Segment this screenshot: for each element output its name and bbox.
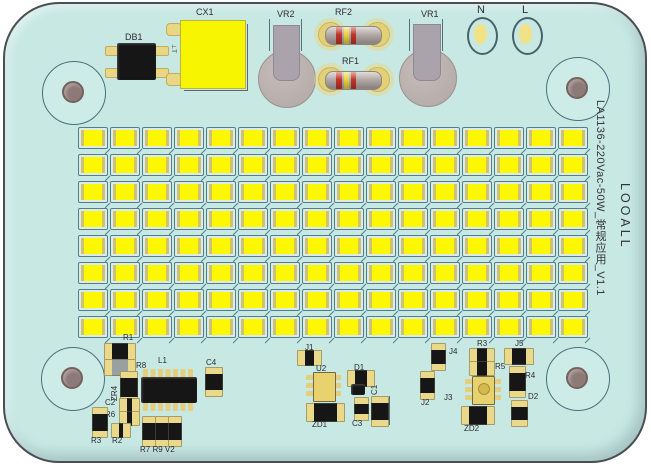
led-chip (494, 208, 524, 230)
led-chip (270, 316, 300, 338)
led-chip (494, 127, 524, 149)
led-chip (110, 235, 140, 257)
l1-ic (141, 377, 197, 403)
r3-label: R3 (91, 436, 101, 445)
c1-outline (389, 396, 390, 425)
terminal-n-label: N (477, 4, 485, 16)
r4-component (509, 366, 526, 398)
led-chip (110, 127, 140, 149)
led-chip (142, 262, 172, 284)
r7-component (142, 416, 156, 447)
cx1-outline (247, 24, 248, 91)
led-chip (366, 262, 396, 284)
led-chip (174, 181, 204, 203)
vr2-label: VR2 (277, 9, 295, 19)
led-chip (238, 127, 268, 149)
rf2-component (325, 26, 382, 45)
r2-label: R2 (112, 436, 122, 445)
terminal-l-pad (512, 17, 543, 55)
v2-component (168, 416, 182, 447)
led-chip (558, 316, 588, 338)
led-chip (398, 289, 428, 311)
hole-pin (566, 367, 588, 389)
hole-pin (566, 77, 588, 99)
db1-component (117, 43, 156, 80)
pcb-photo: DB1 CX1 ⊥T VR2 RF2 RF1 VR1 N L LA1136-22… (0, 0, 651, 467)
led-chip (78, 154, 108, 176)
r1-component (104, 343, 136, 360)
led-chip (430, 289, 460, 311)
led-chip (270, 235, 300, 257)
j2-label: J2 (421, 398, 429, 407)
mounting-hole-top-left (42, 61, 106, 125)
led-chip (142, 289, 172, 311)
r1-label: R1 (123, 333, 133, 342)
led-chip (238, 316, 268, 338)
led-chip (174, 154, 204, 176)
led-chip (206, 127, 236, 149)
j3-label: J3 (444, 393, 452, 402)
led-chip (526, 316, 556, 338)
led-chip (430, 208, 460, 230)
board-model-text: LA1136-220Vac-50W_常规应用_V1.1 (592, 100, 608, 360)
led-chip (270, 127, 300, 149)
led-chip (430, 262, 460, 284)
led-chip (302, 316, 332, 338)
led-chip (494, 316, 524, 338)
led-chip (430, 154, 460, 176)
rf2-label: RF2 (335, 7, 352, 17)
led-chip (334, 127, 364, 149)
led-chip (494, 235, 524, 257)
led-chip (206, 235, 236, 257)
c3-component (354, 397, 369, 421)
led-chip (142, 154, 172, 176)
zd2-component (461, 406, 495, 425)
u2-pins (306, 375, 313, 397)
u3-ic (472, 376, 495, 405)
led-chip (526, 154, 556, 176)
led-chip (238, 262, 268, 284)
terminal-n-solder (474, 24, 487, 44)
led-chip (430, 181, 460, 203)
led-chip (462, 208, 492, 230)
u3-logo-mark (478, 383, 490, 395)
led-chip (494, 154, 524, 176)
led-chip (334, 154, 364, 176)
led-chip (206, 208, 236, 230)
led-chip (558, 262, 588, 284)
j5-label: J5 (515, 339, 523, 348)
led-chip (270, 181, 300, 203)
led-chip (78, 262, 108, 284)
led-chip (302, 154, 332, 176)
led-chip (142, 235, 172, 257)
led-chip (334, 208, 364, 230)
led-chip (558, 208, 588, 230)
led-chip (398, 262, 428, 284)
led-chip (494, 289, 524, 311)
led-chip (558, 181, 588, 203)
led-chip (398, 154, 428, 176)
u3-pins (494, 379, 501, 400)
led-chip (110, 289, 140, 311)
led-chip (270, 262, 300, 284)
zd1-label: ZD1 (312, 420, 327, 429)
led-chip (78, 181, 108, 203)
cx1-polarity-mark: ⊥T (168, 44, 177, 53)
vr1-label: VR1 (421, 9, 439, 19)
led-chip (174, 316, 204, 338)
led-chip (238, 235, 268, 257)
led-chip (494, 262, 524, 284)
led-chip (206, 154, 236, 176)
cx1-label: CX1 (196, 7, 214, 17)
r3b-label: R3 (477, 339, 487, 348)
led-chip (78, 289, 108, 311)
l1-pins (143, 369, 195, 377)
c1-label: C1 (370, 385, 379, 395)
led-chip (430, 127, 460, 149)
led-chip (398, 316, 428, 338)
led-chip (526, 289, 556, 311)
led-chip (462, 262, 492, 284)
j5-component (504, 348, 534, 365)
led-chip (462, 316, 492, 338)
small-chip (351, 384, 365, 395)
led-chip (334, 181, 364, 203)
led-chip (302, 208, 332, 230)
terminal-l-label: L (522, 4, 528, 16)
c4-component (205, 367, 223, 397)
led-chip (110, 262, 140, 284)
u3-pins (465, 379, 472, 400)
led-chip (398, 235, 428, 257)
led-chip (302, 262, 332, 284)
led-chip (334, 289, 364, 311)
led-chip (78, 316, 108, 338)
rf1-label: RF1 (342, 56, 359, 66)
led-chip (206, 316, 236, 338)
db1-pad (155, 46, 169, 56)
led-chip (238, 154, 268, 176)
r5-component (469, 361, 495, 376)
j2-component (420, 371, 435, 400)
brand-text: LOOALL (618, 183, 632, 273)
led-chip (142, 316, 172, 338)
l1-label: L1 (158, 356, 167, 365)
cx1-component (180, 20, 246, 89)
led-chip (78, 208, 108, 230)
led-chip (174, 262, 204, 284)
led-chip (110, 154, 140, 176)
led-chip (398, 181, 428, 203)
led-chip (430, 316, 460, 338)
led-chip (462, 127, 492, 149)
led-chip (366, 289, 396, 311)
led-chip (270, 208, 300, 230)
led-chip (462, 181, 492, 203)
mounting-hole-bottom-left (41, 347, 105, 411)
led-chip (174, 208, 204, 230)
led-chip (494, 181, 524, 203)
led-chip (206, 262, 236, 284)
led-chip (142, 208, 172, 230)
vr2-component (273, 25, 300, 81)
led-chip (366, 181, 396, 203)
rf1-component (325, 71, 382, 90)
led-chip (430, 235, 460, 257)
vr1-outline (442, 19, 443, 51)
cx1-outline (184, 90, 248, 91)
led-chip (238, 289, 268, 311)
c2-label: C2 (105, 398, 115, 407)
led-chip (206, 181, 236, 203)
led-chip (526, 235, 556, 257)
c3-label: C3 (352, 419, 362, 428)
led-chip (302, 235, 332, 257)
r3-component (92, 407, 108, 438)
vr1-component (413, 24, 441, 81)
led-chip (334, 235, 364, 257)
led-chip (206, 289, 236, 311)
u2-ic (313, 372, 336, 402)
led-chip (270, 154, 300, 176)
led-chip (110, 208, 140, 230)
led-chip (526, 208, 556, 230)
led-chip (366, 208, 396, 230)
j4-label: J4 (449, 347, 457, 356)
led-chip (302, 127, 332, 149)
led-chip (558, 127, 588, 149)
led-chip (174, 127, 204, 149)
hole-pin (62, 81, 84, 103)
c1-component (371, 396, 389, 427)
led-chip (558, 289, 588, 311)
vr2-outline (301, 19, 302, 51)
led-chip (174, 289, 204, 311)
led-chip (366, 127, 396, 149)
r9-component (155, 416, 169, 447)
led-chip (398, 208, 428, 230)
led-chip (238, 208, 268, 230)
led-chip (462, 289, 492, 311)
zd2-label: ZD2 (464, 424, 479, 433)
led-chip (334, 262, 364, 284)
led-chip (270, 289, 300, 311)
led-chip (526, 181, 556, 203)
led-chip (526, 127, 556, 149)
terminal-l-solder (519, 24, 532, 44)
terminal-n-pad (467, 17, 498, 55)
r4-label: R4 (525, 371, 535, 380)
db1-label: DB1 (125, 32, 143, 42)
led-chip (78, 127, 108, 149)
led-array (78, 127, 586, 336)
vr1-outline (409, 19, 410, 51)
d2-component (511, 400, 528, 427)
led-chip (558, 154, 588, 176)
led-chip (366, 154, 396, 176)
led-chip (78, 235, 108, 257)
led-chip (526, 262, 556, 284)
led-chip (334, 316, 364, 338)
j4-component (431, 343, 446, 371)
l1-pins (143, 403, 195, 411)
led-chip (110, 181, 140, 203)
r7-r9-v2-label: R7 R9 V2 (140, 445, 175, 454)
led-chip (462, 235, 492, 257)
led-chip (238, 181, 268, 203)
led-chip (366, 316, 396, 338)
led-chip (302, 289, 332, 311)
led-chip (142, 127, 172, 149)
led-chip (366, 235, 396, 257)
led-chip (174, 235, 204, 257)
led-chip (398, 127, 428, 149)
vr2-outline (269, 19, 270, 51)
led-chip (558, 235, 588, 257)
led-chip (302, 181, 332, 203)
led-chip (142, 181, 172, 203)
led-chip (462, 154, 492, 176)
hole-pin (61, 367, 83, 389)
d2-label: D2 (528, 392, 538, 401)
c4-label: C4 (206, 358, 216, 367)
